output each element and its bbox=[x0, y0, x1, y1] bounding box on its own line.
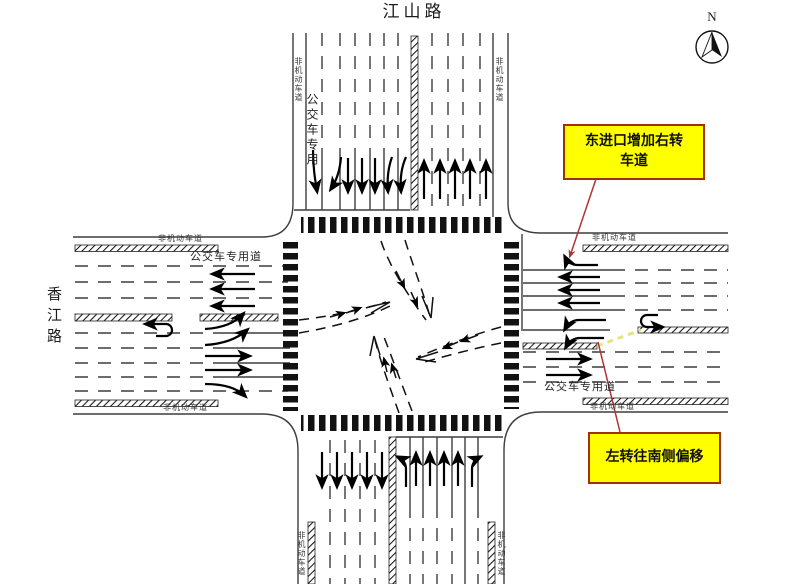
nonmotor-label-east-bottom: 非机动车道 bbox=[590, 403, 635, 411]
callout-left-turn-offset-text: 左转往南侧偏移 bbox=[606, 448, 704, 468]
compass-icon bbox=[696, 31, 728, 63]
nonmotor-label-west-bottom: 非机动车道 bbox=[163, 404, 208, 412]
callout-left-turn-offset: 左转往南侧偏移 bbox=[588, 432, 721, 484]
arrow-right-turn bbox=[472, 457, 480, 487]
guide-from-south bbox=[370, 336, 412, 413]
nonmotor-strip bbox=[583, 245, 728, 252]
guide-from-north bbox=[381, 240, 433, 320]
arrow-right-turn bbox=[205, 384, 245, 396]
nonmotor-label-east-top: 非机动车道 bbox=[592, 234, 637, 242]
nonmotor-label-south-right: 非机动车道 bbox=[497, 531, 505, 576]
guide-from-west bbox=[299, 302, 390, 333]
nonmotor-label-north-right: 非机动车道 bbox=[495, 57, 503, 102]
callout-east-entrance-line2: 车道 bbox=[620, 152, 648, 172]
corner-se bbox=[504, 412, 541, 450]
east-road-arrows bbox=[546, 257, 662, 375]
intersection-diagram: 江山路 香江路 N 非机动车道 公交车专用 非机动车道 非机动车道 公交车专用道… bbox=[0, 0, 796, 584]
crosswalks bbox=[283, 217, 519, 431]
nonmotor-label-south-left: 非机动车道 bbox=[297, 531, 305, 576]
corner-nw bbox=[262, 203, 293, 237]
callout-east-entrance: 东进口增加右转 车道 bbox=[563, 124, 705, 180]
bus-only-label-north: 公交车专用 bbox=[306, 93, 318, 168]
crosswalk-west bbox=[283, 239, 298, 411]
crosswalk-south bbox=[301, 415, 502, 431]
west-road-name: 香江路 bbox=[45, 286, 60, 349]
corner-sw bbox=[262, 414, 298, 451]
arrow-left-turn bbox=[565, 320, 606, 329]
median-north bbox=[411, 36, 418, 210]
nonmotor-strip bbox=[488, 522, 495, 584]
center-turn-guides bbox=[299, 240, 501, 413]
guide-from-east bbox=[416, 327, 501, 363]
west-road bbox=[73, 237, 290, 414]
crosswalk-north bbox=[301, 217, 502, 233]
arrow-left-turn bbox=[205, 330, 247, 345]
arrow-uturn bbox=[641, 315, 662, 327]
corner-ne bbox=[508, 203, 541, 233]
bus-lane-label-west: 公交车专用道 bbox=[190, 252, 262, 263]
nonmotor-label-north-left: 非机动车道 bbox=[294, 57, 302, 102]
median-south bbox=[389, 437, 396, 584]
compass-label: N bbox=[704, 10, 720, 23]
arrow-left-turn bbox=[401, 157, 406, 191]
nonmotor-label-west-top: 非机动车道 bbox=[158, 235, 203, 243]
median-east-south-segment bbox=[523, 343, 597, 349]
callout-east-entrance-line1: 东进口增加右转 bbox=[585, 132, 683, 152]
crosswalk-east bbox=[504, 239, 519, 409]
arrow-uturn bbox=[146, 324, 172, 336]
arrow-left-turn bbox=[388, 157, 392, 191]
leader-line-east-entrance bbox=[570, 176, 597, 256]
bus-lane-label-east: 公交车专用道 bbox=[544, 382, 616, 393]
north-road-name: 江山路 bbox=[344, 3, 484, 20]
arrow-left-turn bbox=[398, 457, 406, 487]
diagram-canvas bbox=[0, 0, 796, 584]
arrow-right-turn bbox=[565, 257, 598, 265]
north-road-arrows bbox=[313, 150, 486, 199]
nonmotor-strip bbox=[308, 522, 315, 584]
median-west bbox=[75, 314, 172, 321]
